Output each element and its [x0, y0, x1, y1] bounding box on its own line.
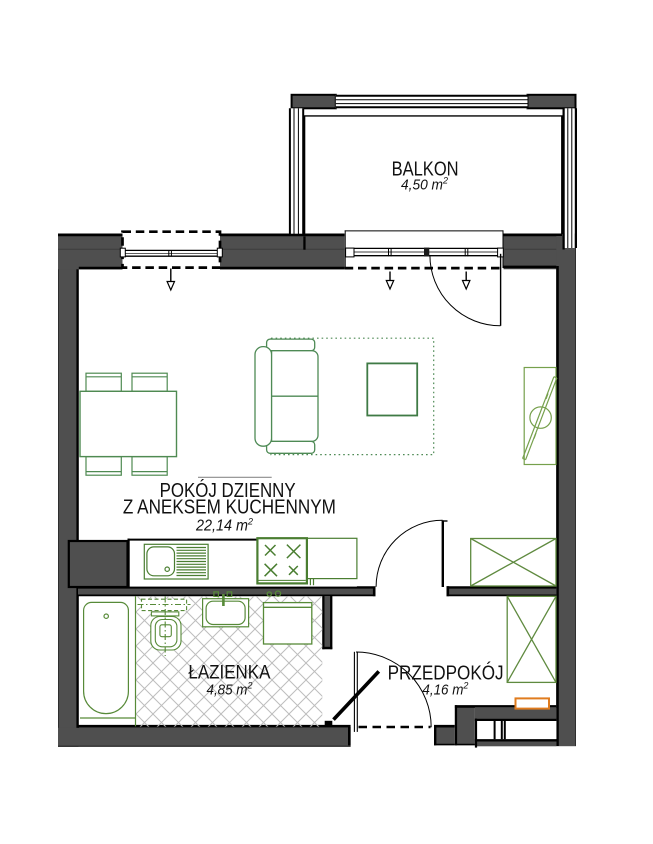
svg-text:4,85 m2: 4,85 m2: [206, 680, 252, 698]
svg-text:4,16 m2: 4,16 m2: [422, 680, 468, 698]
svg-text:ŁAZIENKA: ŁAZIENKA: [188, 661, 270, 683]
svg-text:Z ANEKSEM KUCHENNYM: Z ANEKSEM KUCHENNYM: [123, 496, 336, 519]
svg-text:4,50 m2: 4,50 m2: [401, 175, 448, 193]
svg-text:22,14 m2: 22,14 m2: [195, 517, 253, 535]
